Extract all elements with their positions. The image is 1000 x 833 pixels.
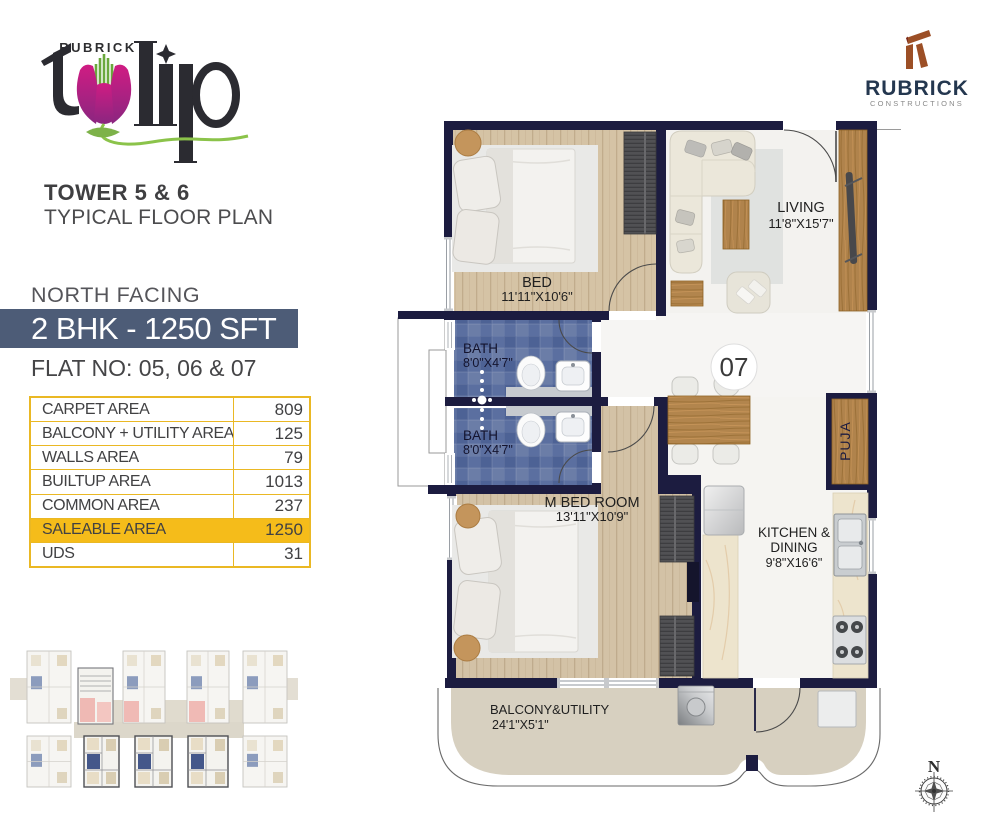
- svg-text:24'1"X5'1": 24'1"X5'1": [492, 718, 549, 732]
- svg-text:LIVING: LIVING: [777, 200, 825, 216]
- svg-text:KITCHEN &: KITCHEN &: [758, 525, 830, 540]
- svg-text:07: 07: [720, 352, 749, 382]
- svg-text:13'11"X10'9": 13'11"X10'9": [556, 509, 629, 524]
- svg-text:BALCONY&UTILITY: BALCONY&UTILITY: [490, 702, 610, 717]
- svg-text:BATH: BATH: [463, 341, 498, 356]
- svg-text:CONSTRUCTIONS: CONSTRUCTIONS: [870, 99, 964, 108]
- svg-text:8'0"X4'7": 8'0"X4'7": [463, 443, 513, 457]
- svg-text:9'8"X16'6": 9'8"X16'6": [766, 556, 823, 570]
- svg-text:RUBRICK: RUBRICK: [865, 77, 969, 100]
- svg-text:DINING: DINING: [770, 540, 817, 555]
- svg-text:PUJA: PUJA: [837, 421, 853, 461]
- svg-text:11'11"X10'6": 11'11"X10'6": [501, 289, 573, 304]
- svg-text:N: N: [928, 757, 941, 776]
- svg-text:8'0"X4'7": 8'0"X4'7": [463, 356, 513, 370]
- svg-text:11'8"X15'7": 11'8"X15'7": [768, 216, 834, 231]
- svg-text:BATH: BATH: [463, 428, 498, 443]
